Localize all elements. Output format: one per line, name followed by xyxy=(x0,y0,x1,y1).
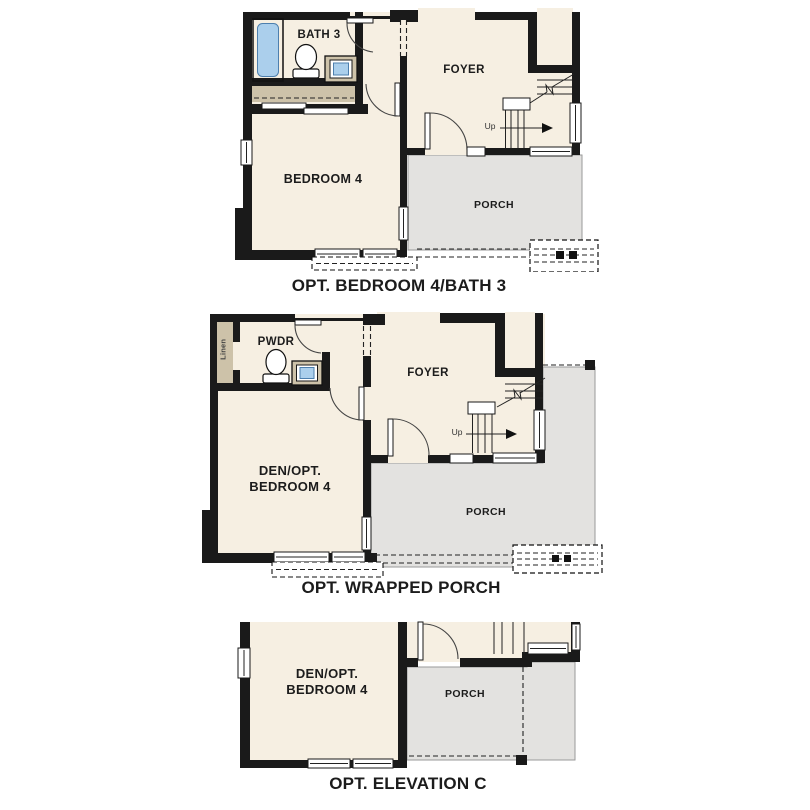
sink-icon xyxy=(325,56,357,82)
den-label-line2: BEDROOM 4 xyxy=(249,479,330,494)
stair-wall xyxy=(495,313,505,377)
room-label-den: DEN/OPT.BEDROOM 4 xyxy=(257,666,397,698)
porch-post xyxy=(585,360,595,370)
stair-closet-floor xyxy=(505,312,535,368)
powder-door-opening xyxy=(233,342,240,370)
porch-steps-icon xyxy=(530,240,598,272)
porch-post xyxy=(516,755,527,765)
room-label-foyer: FOYER xyxy=(424,64,504,77)
wall xyxy=(322,352,330,391)
floor-cut-opening xyxy=(537,8,573,20)
plan-opt-bedroom4-bath3: BATH 3 FOYER BEDROOM 4 PORCH Up OPT. BED… xyxy=(228,8,612,308)
wall xyxy=(440,313,495,323)
floor-cut-opening xyxy=(377,312,440,323)
wall xyxy=(210,314,295,322)
room-label-porch: PORCH xyxy=(425,688,505,700)
wall xyxy=(363,314,385,325)
bathtub-icon xyxy=(253,19,283,81)
room-label-foyer: FOYER xyxy=(388,367,468,380)
floor-cut-opening xyxy=(418,8,475,20)
stoop-dashed xyxy=(312,257,417,270)
plan-caption: OPT. BEDROOM 4/BATH 3 xyxy=(228,276,570,296)
plan-opt-elevation-c: DEN/OPT.BEDROOM 4 PORCH OPT. ELEVATION C xyxy=(232,616,602,801)
stairs-up-label: Up xyxy=(448,428,466,438)
wall xyxy=(460,658,527,667)
plan1-drawing xyxy=(228,8,612,272)
wall xyxy=(398,622,407,768)
wall xyxy=(407,658,418,667)
room-label-porch: PORCH xyxy=(446,506,526,518)
wall xyxy=(363,420,371,455)
stair-wall xyxy=(528,65,572,73)
porch-area xyxy=(407,662,575,760)
room-label-den: DEN/OPT.BEDROOM 4 xyxy=(220,463,360,495)
stair-wall xyxy=(495,368,543,377)
sink-icon xyxy=(292,361,322,385)
plan-opt-wrapped-porch: Linen PWDR FOYER DEN/OPT.BEDROOM 4 PORCH… xyxy=(200,312,610,607)
room-label-bath3: BATH 3 xyxy=(288,29,350,42)
den-label-line1: DEN/OPT. xyxy=(259,463,321,478)
porch-steps-icon xyxy=(513,545,602,573)
room-label-pwdr: PWDR xyxy=(246,336,306,349)
room-label-linen: Linen xyxy=(220,334,229,364)
wall xyxy=(240,622,250,760)
room-label-porch: PORCH xyxy=(454,199,534,211)
wall xyxy=(475,12,537,20)
den-label-line2: BEDROOM 4 xyxy=(286,682,367,697)
toilet-icon xyxy=(293,45,319,79)
plan2-drawing xyxy=(200,312,610,580)
wall xyxy=(535,313,543,368)
dashed-opening xyxy=(363,326,371,356)
stairs-up-label: Up xyxy=(481,122,499,132)
plan-caption: OPT. ELEVATION C xyxy=(232,774,584,794)
wall xyxy=(363,356,371,387)
stair-wall xyxy=(528,12,537,73)
den-label-line1: DEN/OPT. xyxy=(296,666,358,681)
closet-shelf xyxy=(252,86,355,102)
wall xyxy=(210,314,218,514)
stoop-dashed xyxy=(272,562,383,577)
floor-plan-sheet: BATH 3 FOYER BEDROOM 4 PORCH Up OPT. BED… xyxy=(0,0,810,810)
plan-caption: OPT. WRAPPED PORCH xyxy=(200,578,602,598)
room-label-bedroom4: BEDROOM 4 xyxy=(263,171,383,187)
